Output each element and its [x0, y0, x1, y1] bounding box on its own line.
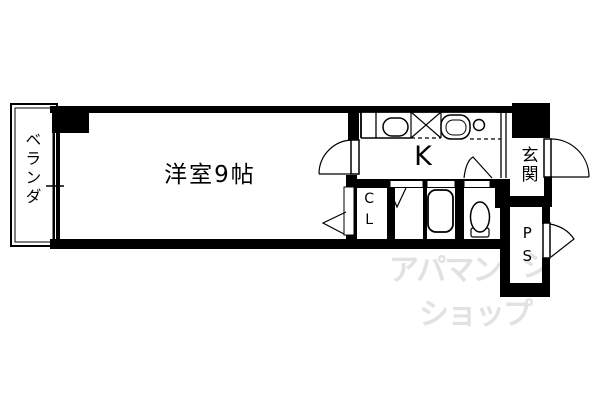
- closet-folding-door: [323, 212, 346, 234]
- label-balcony: ベランダ: [22, 131, 40, 231]
- label-entrance: 玄関: [517, 146, 537, 190]
- label-closet: CL: [361, 191, 377, 235]
- bath-opening: [427, 181, 455, 188]
- label-pipe-space: PS: [518, 224, 535, 270]
- closet-opening: [344, 187, 354, 235]
- burner-circle-icon: [474, 120, 485, 131]
- label-kitchen: K: [398, 141, 448, 172]
- wall-corner-top-right: [512, 103, 550, 138]
- wall-washroom-bath: [423, 183, 427, 241]
- floor-plan-canvas: アパマン ジ ショップ: [0, 0, 600, 400]
- wall-bottom: [50, 239, 503, 249]
- wall-ps-right-upper: [542, 196, 550, 224]
- label-western-room: 洋室9帖: [120, 162, 300, 188]
- kitchen-counter: [361, 112, 501, 139]
- toilet-bowl-icon: [471, 202, 490, 232]
- entry-door-arc: [551, 139, 589, 177]
- wall-kitchen-left-upper: [348, 107, 359, 141]
- entrance-step: [501, 112, 506, 178]
- floor-plan-drawing: [0, 0, 600, 400]
- wall-bath-toilet: [455, 183, 464, 241]
- toilet-door-fan: [464, 157, 492, 178]
- toilet-opening: [464, 181, 490, 188]
- wall-ps-bottom: [500, 283, 550, 297]
- ps-door-leaf: [543, 223, 550, 258]
- walls: [50, 103, 552, 297]
- bathtub-icon: [428, 190, 453, 232]
- kitchen-door-leaf: [351, 140, 359, 174]
- washroom-opening: [390, 181, 423, 188]
- balcony-window: [46, 133, 64, 240]
- entry-door-leaf: [544, 139, 551, 177]
- wall-ps-left: [500, 196, 510, 297]
- kitchen-door-arc: [319, 140, 353, 174]
- ps-door-fan: [550, 224, 574, 257]
- sink-icon: [383, 118, 408, 136]
